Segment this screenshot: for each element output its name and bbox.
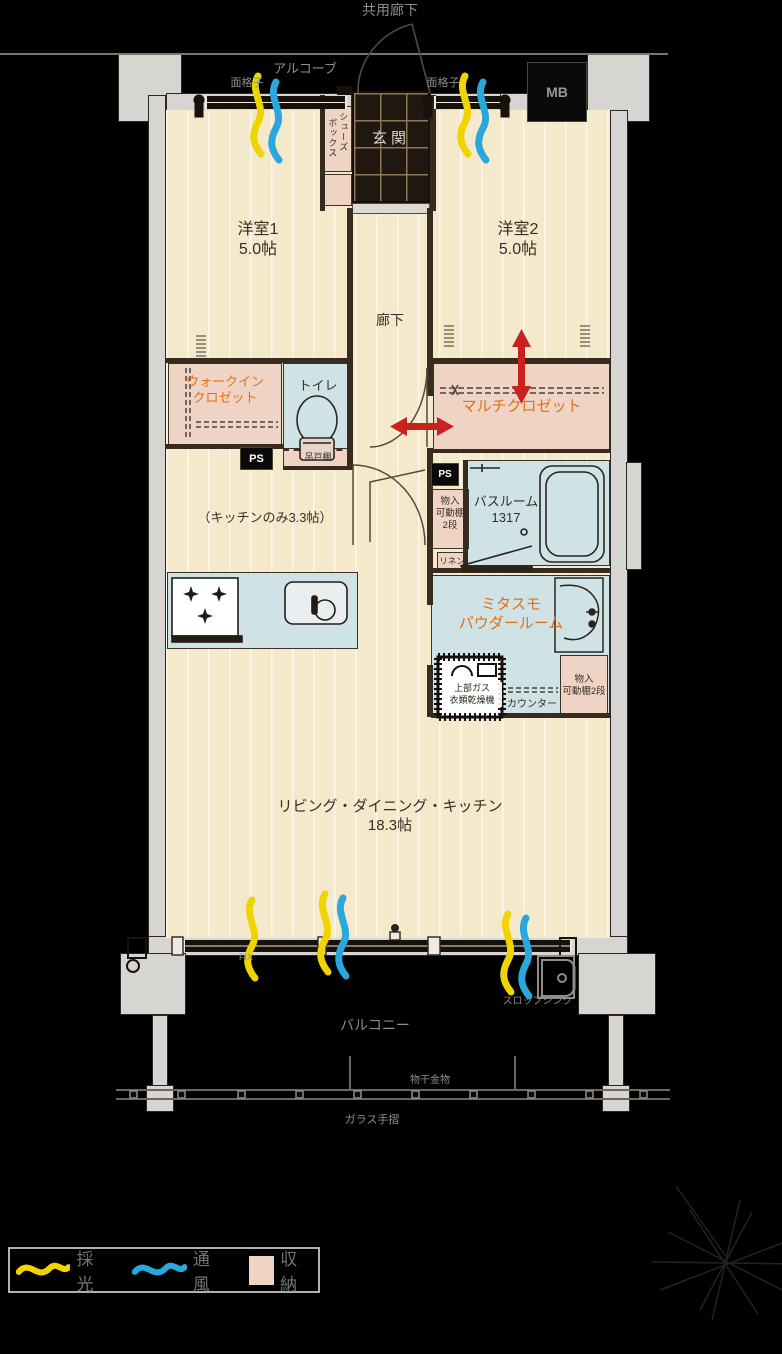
legend-ventilation-label: 通風 bbox=[193, 1245, 225, 1295]
wall-right-bath-bump bbox=[626, 462, 642, 570]
western2-label: 洋室2 5.0帖 bbox=[458, 220, 578, 260]
wall-toilet-south bbox=[283, 466, 353, 470]
linen-label: リネン bbox=[437, 556, 467, 567]
grill-right-label: 面格子 bbox=[408, 77, 478, 91]
common-corridor-label: 共用廊下 bbox=[340, 2, 440, 20]
storage-right-label: 物入 可動棚2段 bbox=[560, 674, 608, 698]
gas-dryer-label: 上部ガス 衣類乾燥機 bbox=[442, 682, 502, 707]
wic-label: ウォークイン クロゼット bbox=[168, 374, 282, 407]
balcony-foot-left bbox=[146, 1085, 174, 1112]
toilet-label: トイレ bbox=[283, 378, 353, 394]
glass-railing bbox=[116, 1056, 670, 1099]
ldk-label: リビング・ダイニング・キッチン 18.3帖 bbox=[240, 798, 540, 836]
toilet-room bbox=[283, 363, 353, 449]
powder-room-label: ミタスモ パウダールーム bbox=[431, 596, 591, 634]
window-room1 bbox=[205, 96, 347, 109]
shoes-box-lower bbox=[324, 174, 352, 206]
hallway-label: 廊下 bbox=[360, 312, 420, 330]
wall-powder-south bbox=[431, 713, 610, 718]
wall-corridor-left bbox=[347, 208, 353, 470]
hanging-cupboard-label: 吊戸棚 bbox=[283, 452, 353, 463]
wall-left bbox=[148, 95, 166, 956]
balcony-foot-right bbox=[602, 1085, 630, 1112]
pipe-space-2-label: PS bbox=[438, 469, 451, 480]
kitchen-counter bbox=[167, 572, 358, 649]
meter-box-label: MB bbox=[546, 84, 568, 100]
wall-multicloset-south bbox=[433, 449, 610, 453]
legend: 採光 通風 収納 bbox=[8, 1247, 320, 1293]
wall-corridor-right-upper bbox=[427, 208, 433, 396]
laundry-hardware-label: 物干金物 bbox=[400, 1075, 460, 1088]
legend-storage-label: 収納 bbox=[280, 1245, 312, 1295]
balcony-block-right bbox=[578, 953, 656, 1015]
slop-sink-icon bbox=[538, 956, 574, 998]
starburst-decoration bbox=[652, 1186, 782, 1320]
wall-shoes-left bbox=[320, 95, 325, 211]
wall-room2-south bbox=[433, 358, 610, 363]
pipe-space-1-label: PS bbox=[249, 453, 264, 465]
multi-closet-label: マルチクロゼット bbox=[433, 398, 610, 417]
wall-bath-south bbox=[431, 568, 610, 573]
wall-entrance-right bbox=[430, 95, 436, 211]
entrance-label: 玄関 bbox=[352, 130, 430, 149]
balcony-block-left bbox=[120, 953, 186, 1015]
floor-plan: MB PS PS bbox=[0, 0, 782, 1354]
western1-label: 洋室1 5.0帖 bbox=[198, 220, 318, 260]
balcony-post-left bbox=[152, 1015, 168, 1092]
balcony-post-right bbox=[608, 1015, 624, 1092]
daylight-wave-icon bbox=[16, 1258, 70, 1282]
wall-room1-south bbox=[166, 358, 353, 363]
entrance-step bbox=[352, 203, 430, 214]
grill-left-label: 面格子 bbox=[212, 77, 282, 91]
bathroom-label: バスルーム 1317 bbox=[460, 494, 552, 527]
legend-daylight-label: 採光 bbox=[76, 1245, 108, 1295]
window-living-south bbox=[183, 940, 572, 952]
storage-left-label: 物入 可動棚 2段 bbox=[431, 496, 469, 532]
storage-swatch-icon bbox=[249, 1256, 274, 1285]
window-room2 bbox=[434, 96, 504, 109]
wall-powder-left-lower bbox=[427, 665, 433, 717]
slop-sink-label: スロップシンク bbox=[490, 996, 585, 1009]
fix-label: FIX bbox=[230, 952, 262, 963]
alcove-label: アルコーブ bbox=[255, 61, 355, 77]
shoes-box-label-1: シューズ bbox=[337, 112, 348, 152]
pipe-space-1: PS bbox=[240, 447, 273, 470]
shoes-box-label-2: ボックス bbox=[326, 118, 337, 158]
pipe-space-2: PS bbox=[431, 463, 459, 486]
kitchen-note-label: （キッチンのみ3.3帖） bbox=[175, 510, 355, 526]
meter-box: MB bbox=[527, 62, 587, 122]
ventilation-wave-icon bbox=[132, 1258, 186, 1282]
counter-label: カウンター bbox=[502, 699, 562, 712]
balcony-label: バルコニー bbox=[330, 1017, 420, 1035]
glass-rail-label: ガラス手摺 bbox=[340, 1114, 404, 1128]
